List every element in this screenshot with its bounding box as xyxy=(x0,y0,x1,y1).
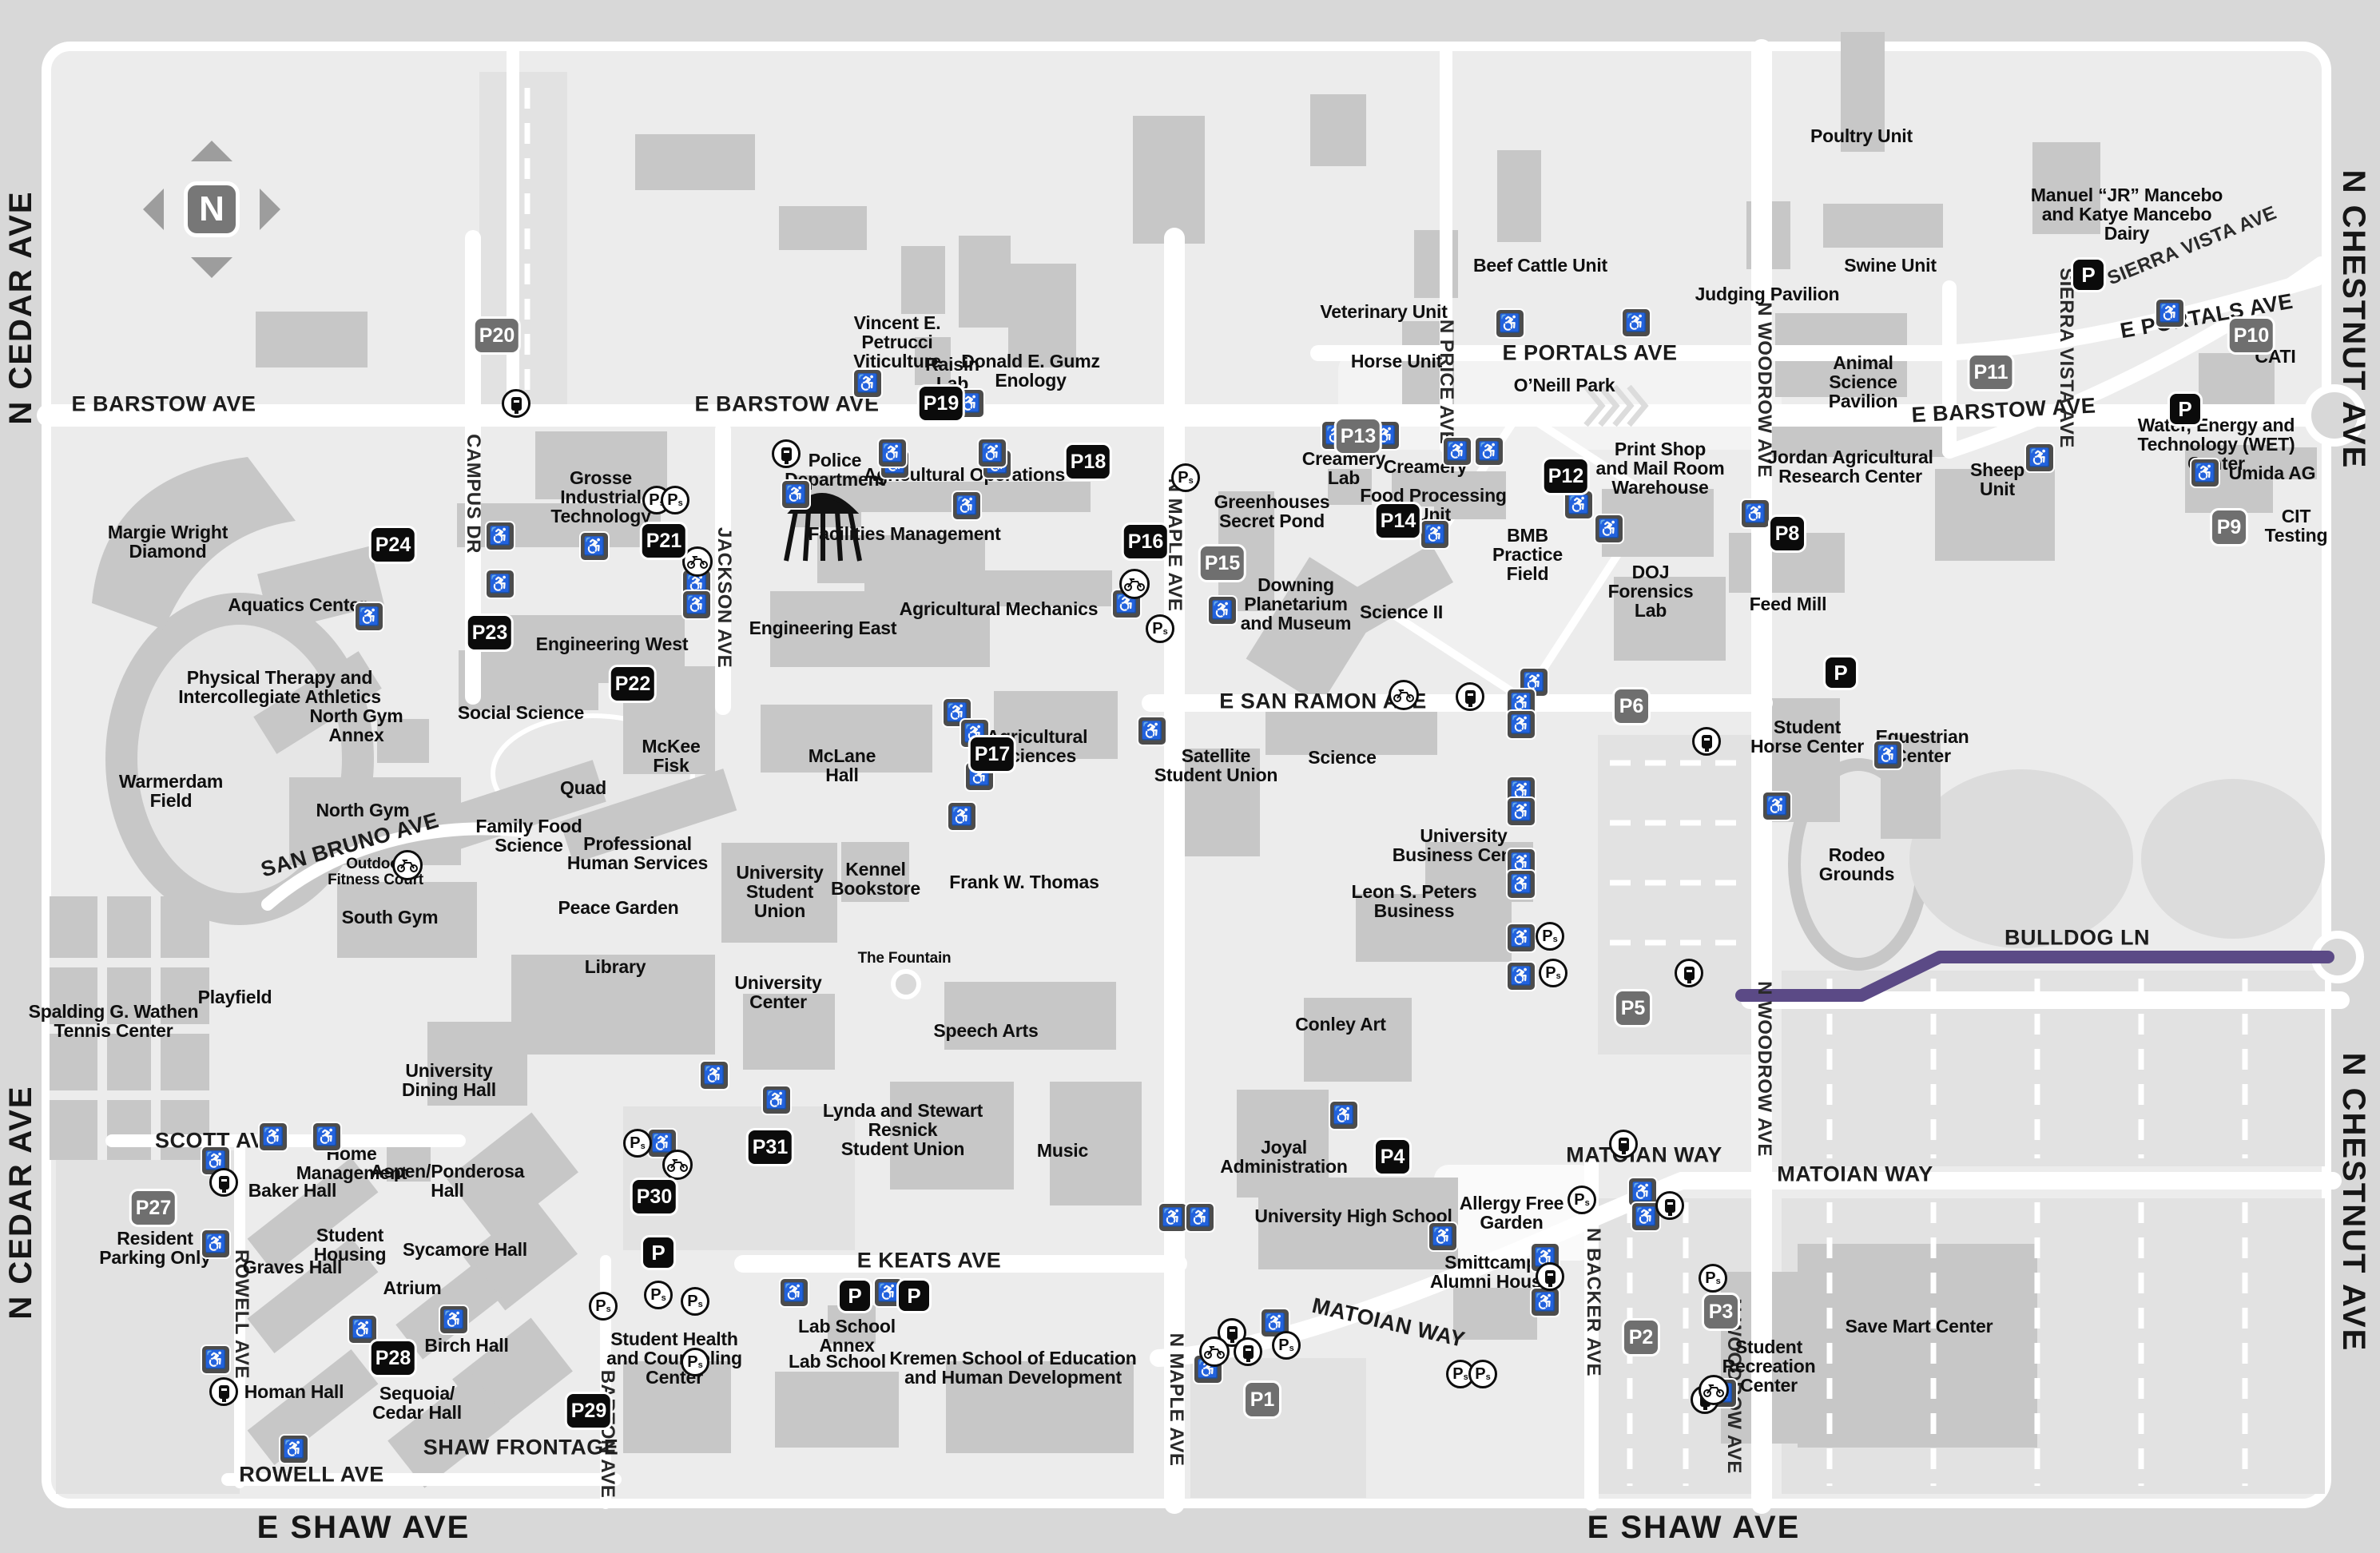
place-label-grosse-industrial-technology: Grosse Industrial Technology xyxy=(550,468,650,526)
parking-sign-p4: P4 xyxy=(1373,1138,1412,1176)
place-label-allergy-free-garden: Allergy Free Garden xyxy=(1460,1194,1564,1232)
compass-rose-icon: N xyxy=(148,145,276,273)
place-label-engineering-west: Engineering West xyxy=(536,634,689,653)
campus-map: N N CEDAR AVEN CEDAR AVEN CHESTNUT AVEN … xyxy=(0,0,2380,1553)
place-label-social-science: Social Science xyxy=(458,703,584,722)
pay-station-icon xyxy=(502,389,530,418)
place-label-the-fountain: The Fountain xyxy=(858,951,952,967)
street-label-e-shaw-ave-left: E SHAW AVE xyxy=(257,1511,471,1543)
place-label-peace-garden: Peace Garden xyxy=(558,898,678,917)
compass-north-label: N xyxy=(184,181,240,237)
accessible-parking-icon: ♿ xyxy=(439,1305,469,1335)
parking-sign-p23: P23 xyxy=(466,614,514,652)
street-label-e-barstow-ave-center: E BARSTOW AVE xyxy=(694,394,879,415)
place-label-physical-therapy-athletics: Physical Therapy and Intercollegiate Ath… xyxy=(178,668,381,706)
place-label-kremen-school: Kremen School of Education and Human Dev… xyxy=(889,1348,1136,1387)
parking-sign-p31: P31 xyxy=(746,1128,794,1166)
pay-station-icon xyxy=(772,439,801,468)
place-label-aquatics-center: Aquatics Center xyxy=(228,595,366,614)
parking-sign-p2: P2 xyxy=(1622,1318,1660,1356)
place-label-homan-hall: Homan Hall xyxy=(244,1382,344,1401)
parking-sign-icon: P xyxy=(896,1278,932,1313)
place-label-atrium: Atrium xyxy=(383,1278,442,1297)
place-label-downing-planetarium: Downing Planetarium and Museum xyxy=(1241,575,1352,633)
accessible-parking-icon: ♿ xyxy=(1329,1100,1359,1130)
place-label-facilities-management: Facilities Management xyxy=(808,524,1000,543)
place-label-jordan-agricultural-research-center: Jordan Agricultural Research Center xyxy=(1767,447,1933,486)
place-label-print-shop-mail-room: Print Shop and Mail Room Warehouse xyxy=(1596,439,1725,497)
place-label-swine-unit: Swine Unit xyxy=(1844,256,1937,275)
parking-sign-p19: P19 xyxy=(917,384,965,423)
street-label-e-keats-ave: E KEATS AVE xyxy=(857,1250,1002,1272)
place-label-sequoia-cedar-hall: Sequoia/ Cedar Hall xyxy=(372,1384,462,1422)
accessible-parking-icon: ♿ xyxy=(977,438,1007,468)
street-label-n-backer-ave: N BACKER AVE xyxy=(1583,1228,1603,1376)
street-label-jackson-ave: JACKSON AVE xyxy=(714,527,733,668)
place-label-library: Library xyxy=(585,957,646,976)
accessible-parking-icon: ♿ xyxy=(1530,1287,1560,1317)
street-label-n-chestnut-ave-top: N CHESTNUT AVE xyxy=(2338,170,2370,470)
street-label-n-chestnut-ave-bottom: N CHESTNUT AVE xyxy=(2338,1053,2370,1352)
place-label-mclane-hall: McLane Hall xyxy=(809,746,876,784)
parking-sign-p21: P21 xyxy=(640,522,688,560)
place-label-spalding-wathen-tennis-center: Spalding G. Wathen Tennis Center xyxy=(29,1002,199,1040)
accessible-parking-icon: ♿ xyxy=(1740,498,1770,529)
accessible-parking-icon: ♿ xyxy=(279,1434,309,1464)
parking-sign-p15: P15 xyxy=(1198,544,1246,582)
parking-sign-p16: P16 xyxy=(1122,522,1170,561)
accessible-parking-icon: ♿ xyxy=(1420,519,1450,550)
accessible-parking-icon: ♿ xyxy=(258,1122,288,1152)
accessible-parking-icon: ♿ xyxy=(1506,923,1536,953)
parking-sign-p29: P29 xyxy=(565,1392,613,1430)
street-label-n-maple-ave-bottom: N MAPLE AVE xyxy=(1166,1333,1186,1467)
pay-station-icon xyxy=(1655,1191,1684,1220)
place-label-professional-human-services: Professional Human Services xyxy=(567,834,708,872)
parking-sign-icon: P xyxy=(837,1278,872,1313)
accessible-parking-icon: ♿ xyxy=(852,368,883,399)
pay-by-plate-icon: Ps xyxy=(1567,1186,1596,1214)
accessible-parking-icon: ♿ xyxy=(947,801,977,832)
street-label-campus-dr: CAMPUS DR xyxy=(463,434,483,554)
place-label-music: Music xyxy=(1037,1141,1088,1160)
place-label-student-horse-center: Student Horse Center xyxy=(1750,717,1864,756)
street-label-e-barstow-ave-left: E BARSTOW AVE xyxy=(71,394,256,415)
pay-by-plate-icon: Ps xyxy=(623,1129,652,1158)
place-label-university-dining-hall: University Dining Hall xyxy=(402,1061,496,1099)
parking-sign-p9: P9 xyxy=(2210,508,2248,546)
pay-by-plate-icon: Ps xyxy=(1539,959,1567,987)
place-label-north-gym-annex: North Gym Annex xyxy=(309,706,403,745)
street-label-bulldog-ln: BULLDOG LN xyxy=(2005,927,2150,949)
place-label-animal-science-pavilion: Animal Science Pavilion xyxy=(1829,353,1898,411)
street-label-e-shaw-ave-right: E SHAW AVE xyxy=(1587,1511,1801,1543)
motorcycle-parking-icon xyxy=(1119,569,1150,599)
place-label-graves-hall: Graves Hall xyxy=(243,1257,342,1277)
pay-station-icon xyxy=(1234,1337,1262,1366)
accessible-parking-icon: ♿ xyxy=(2190,458,2220,488)
street-label-n-price-ave: N PRICE AVE xyxy=(1436,320,1456,444)
pay-by-plate-icon: Ps xyxy=(1699,1264,1727,1293)
accessible-parking-icon: ♿ xyxy=(579,531,610,562)
accessible-parking-icon: ♿ xyxy=(201,1344,231,1375)
place-label-veterinary-unit: Veterinary Unit xyxy=(1320,302,1447,321)
place-label-resident-parking-only: Resident Parking Only xyxy=(99,1229,210,1267)
accessible-parking-icon: ♿ xyxy=(1506,869,1536,900)
place-label-beef-cattle-unit: Beef Cattle Unit xyxy=(1473,256,1607,275)
place-label-poultry-unit: Poultry Unit xyxy=(1810,126,1913,145)
place-label-frank-w-thomas: Frank W. Thomas xyxy=(949,872,1099,892)
parking-sign-p14: P14 xyxy=(1374,502,1422,540)
place-label-rodeo-grounds: Rodeo Grounds xyxy=(1819,845,1894,884)
parking-sign-p13: P13 xyxy=(1334,417,1382,455)
place-label-horse-unit: Horse Unit xyxy=(1351,352,1442,371)
accessible-parking-icon: ♿ xyxy=(952,491,982,521)
compass-east-arrow-icon xyxy=(260,189,280,230)
parking-sign-p28: P28 xyxy=(369,1339,417,1377)
street-label-matoian-way-upper: MATOIAN WAY xyxy=(1566,1145,1722,1166)
place-label-satellite-student-union: Satellite Student Union xyxy=(1154,746,1278,784)
place-label-save-mart-center: Save Mart Center xyxy=(1846,1317,1993,1336)
accessible-parking-icon: ♿ xyxy=(1506,709,1536,740)
pay-by-plate-icon: Ps xyxy=(681,1348,709,1376)
place-label-engineering-east: Engineering East xyxy=(749,618,897,637)
place-label-aspen-ponderosa-hall: Aspen/Ponderosa Hall xyxy=(371,1162,525,1200)
street-label-n-cedar-ave-bottom: N CEDAR AVE xyxy=(5,1085,37,1319)
place-label-greenhouses-secret-pond: Greenhouses Secret Pond xyxy=(1214,492,1330,530)
parking-sign-icon: P xyxy=(1823,655,1858,690)
place-label-family-food-science: Family Food Science xyxy=(475,816,582,855)
pay-station-icon xyxy=(1692,727,1721,756)
accessible-parking-icon: ♿ xyxy=(1428,1221,1458,1252)
motorcycle-parking-icon xyxy=(392,850,423,880)
place-label-oneill-park: O’Neill Park xyxy=(1514,375,1615,395)
place-label-judging-pavilion: Judging Pavilion xyxy=(1695,284,1840,304)
place-label-university-center: University Center xyxy=(734,973,821,1011)
place-label-feed-mill: Feed Mill xyxy=(1750,594,1827,614)
street-label-shaw-frontage: SHAW FRONTAGE xyxy=(423,1437,619,1459)
pay-by-plate-icon: Ps xyxy=(1171,463,1200,492)
place-label-umida-ag: Umida AG xyxy=(2229,463,2316,483)
accessible-parking-icon: ♿ xyxy=(1506,961,1536,991)
accessible-parking-icon: ♿ xyxy=(485,521,515,551)
accessible-parking-icon: ♿ xyxy=(779,1277,809,1308)
accessible-parking-icon: ♿ xyxy=(1762,791,1792,821)
accessible-parking-icon: ♿ xyxy=(354,602,384,632)
place-label-university-high-school: University High School xyxy=(1254,1206,1452,1225)
parking-sign-p1: P1 xyxy=(1243,1380,1281,1419)
accessible-parking-icon: ♿ xyxy=(485,569,515,599)
accessible-parking-icon: ♿ xyxy=(1594,514,1624,544)
pay-by-plate-icon: Ps xyxy=(1146,614,1174,643)
pay-by-plate-icon: Ps xyxy=(644,1281,673,1309)
parking-sign-p30: P30 xyxy=(630,1178,678,1216)
pay-station-icon xyxy=(209,1377,238,1406)
place-label-baker-hall: Baker Hall xyxy=(248,1181,337,1200)
accessible-parking-icon: ♿ xyxy=(1873,740,1903,770)
accessible-parking-icon: ♿ xyxy=(699,1060,729,1090)
parking-sign-p5: P5 xyxy=(1614,989,1652,1027)
pay-station-icon xyxy=(209,1168,238,1197)
compass-north-arrow-icon xyxy=(191,141,232,161)
pay-station-icon xyxy=(1675,959,1703,987)
pay-station-icon xyxy=(1456,682,1484,711)
parking-sign-p11: P11 xyxy=(1967,353,2014,391)
accessible-parking-icon: ♿ xyxy=(201,1229,231,1259)
place-label-agricultural-mechanics: Agricultural Mechanics xyxy=(900,599,1099,618)
place-label-margie-wright-diamond: Margie Wright Diamond xyxy=(108,522,228,561)
place-label-south-gym: South Gym xyxy=(342,908,439,927)
parking-sign-p27: P27 xyxy=(129,1189,177,1227)
accessible-parking-icon: ♿ xyxy=(1621,308,1651,338)
parking-sign-p6: P6 xyxy=(1612,687,1651,725)
motorcycle-parking-icon xyxy=(1699,1375,1729,1405)
street-label-n-woodrow-ave-middle: N WOODROW AVE xyxy=(1754,981,1774,1157)
place-label-kennel-bookstore: Kennel Bookstore xyxy=(831,860,920,898)
place-label-cit-testing: CIT Testing xyxy=(2265,506,2328,545)
place-label-lab-school-annex: Lab School Annex xyxy=(798,1317,896,1355)
pay-by-plate-icon: Ps xyxy=(681,1287,709,1316)
place-label-quad: Quad xyxy=(560,778,606,797)
accessible-parking-icon: ♿ xyxy=(761,1085,792,1115)
place-label-joyal-administration: Joyal Administration xyxy=(1220,1138,1347,1176)
place-label-playfield: Playfield xyxy=(198,987,272,1007)
motorcycle-parking-icon xyxy=(1389,680,1419,710)
street-label-barton-ave: BARTON AVE xyxy=(598,1370,617,1499)
place-label-mancebo-dairy: Manuel “JR” Mancebo and Katye Mancebo Da… xyxy=(2031,185,2223,243)
parking-sign-p24: P24 xyxy=(369,526,417,564)
place-label-science-ii: Science II xyxy=(1360,602,1443,622)
place-label-bmb-practice-field: BMB Practice Field xyxy=(1492,526,1563,583)
accessible-parking-icon: ♿ xyxy=(877,438,908,468)
street-label-sierra-vista-ave-vertical: SIERRA VISTA AVE xyxy=(2056,268,2076,448)
accessible-parking-icon: ♿ xyxy=(2024,443,2055,473)
place-label-doj-forensics-lab: DOJ Forensics Lab xyxy=(1608,562,1694,620)
place-label-donald-gumz-enology: Donald E. Gumz Enology xyxy=(961,352,1100,390)
parking-sign-icon: P xyxy=(641,1235,676,1270)
place-label-north-gym: North Gym xyxy=(316,800,409,820)
place-label-student-health-counseling: Student Health and Counseling Center xyxy=(606,1329,742,1387)
place-label-conley-art: Conley Art xyxy=(1295,1015,1385,1034)
parking-sign-icon: P xyxy=(2167,391,2203,427)
place-label-leon-s-peters-business: Leon S. Peters Business xyxy=(1352,882,1477,920)
pay-station-icon xyxy=(1609,1130,1638,1158)
accessible-parking-icon: ♿ xyxy=(1506,796,1536,827)
accessible-parking-icon: ♿ xyxy=(1158,1202,1188,1233)
pay-by-plate-icon: Ps xyxy=(1536,922,1564,951)
place-label-sycamore-hall: Sycamore Hall xyxy=(403,1240,527,1259)
parking-sign-icon: P xyxy=(2071,257,2106,292)
place-label-university-student-union: University Student Union xyxy=(736,863,823,920)
street-label-n-cedar-ave-top: N CEDAR AVE xyxy=(5,190,37,424)
place-label-sheep-unit: Sheep Unit xyxy=(1970,460,2024,498)
pay-by-plate-icon: Ps xyxy=(589,1292,618,1321)
pay-by-plate-icon: Ps xyxy=(1272,1331,1301,1360)
accessible-parking-icon: ♿ xyxy=(1442,436,1472,467)
accessible-parking-icon: ♿ xyxy=(1185,1202,1215,1233)
parking-sign-p20: P20 xyxy=(473,316,521,355)
parking-sign-p17: P17 xyxy=(968,735,1016,773)
street-label-rowell-ave-horizontal: ROWELL AVE xyxy=(239,1464,384,1486)
motorcycle-parking-icon xyxy=(662,1150,693,1180)
compass-west-arrow-icon xyxy=(143,189,164,230)
accessible-parking-icon: ♿ xyxy=(781,479,811,510)
pay-by-plate-icon: Ps xyxy=(1468,1360,1497,1388)
place-label-lab-school: Lab School xyxy=(789,1352,886,1371)
accessible-parking-icon: ♿ xyxy=(1137,716,1167,746)
parking-sign-p22: P22 xyxy=(609,665,657,703)
accessible-parking-icon: ♿ xyxy=(681,590,712,620)
parking-sign-p3: P3 xyxy=(1702,1293,1740,1331)
accessible-parking-icon: ♿ xyxy=(312,1122,342,1152)
compass-south-arrow-icon xyxy=(191,257,232,278)
parking-sign-p18: P18 xyxy=(1064,443,1112,481)
street-label-matoian-way-right: MATOIAN WAY xyxy=(1777,1164,1933,1186)
place-label-resnick-student-union: Lynda and Stewart Resnick Student Union xyxy=(823,1101,983,1158)
accessible-parking-icon: ♿ xyxy=(1495,308,1525,339)
motorcycle-parking-icon xyxy=(1199,1337,1230,1367)
place-label-birch-hall: Birch Hall xyxy=(424,1336,508,1355)
accessible-parking-icon: ♿ xyxy=(1474,436,1504,467)
accessible-parking-icon: ♿ xyxy=(1207,595,1238,626)
parking-sign-p10: P10 xyxy=(2227,316,2275,355)
accessible-parking-icon: ♿ xyxy=(2155,298,2185,328)
place-label-mckee-fisk: McKee Fisk xyxy=(642,737,700,775)
place-label-science: Science xyxy=(1308,748,1377,767)
street-label-e-portals-ave: E PORTALS AVE xyxy=(1502,343,1677,364)
parking-sign-p8: P8 xyxy=(1768,514,1806,553)
place-label-speech-arts: Speech Arts xyxy=(933,1021,1038,1040)
place-label-warmerdam-field: Warmerdam Field xyxy=(119,772,223,810)
pay-station-icon xyxy=(1536,1262,1564,1291)
pay-by-plate-icon: Ps xyxy=(661,486,689,514)
parking-sign-p12: P12 xyxy=(1542,457,1590,495)
